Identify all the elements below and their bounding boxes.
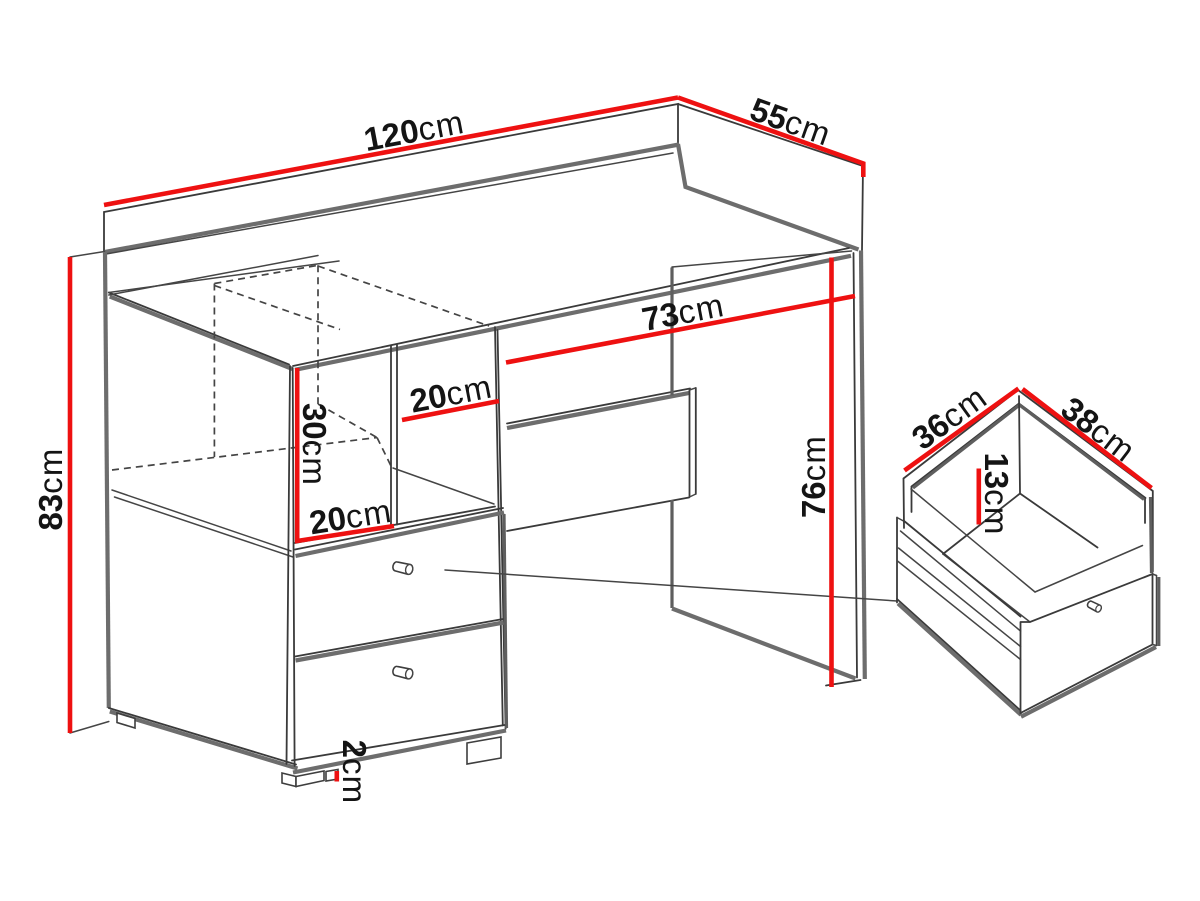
svg-text:30cm: 30cm xyxy=(297,403,334,486)
svg-text:76cm: 76cm xyxy=(795,435,832,518)
svg-text:83cm: 83cm xyxy=(32,447,69,530)
svg-text:2cm: 2cm xyxy=(337,740,374,805)
svg-text:13cm: 13cm xyxy=(979,452,1016,535)
